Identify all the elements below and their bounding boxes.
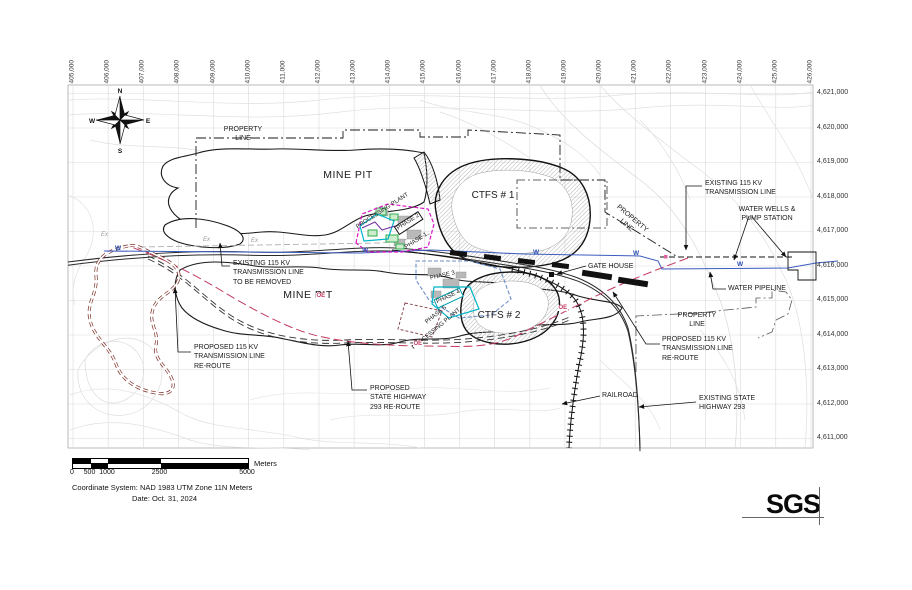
date-note: Date: Oct. 31, 2024 bbox=[132, 494, 197, 503]
scale-tick: 2500 bbox=[152, 469, 168, 476]
logo-horizontal-rule bbox=[742, 517, 824, 518]
water-line-marker: W bbox=[115, 245, 121, 252]
easting-tick-label: 414,000 bbox=[385, 40, 394, 84]
northing-tick-label: 4,621,000 bbox=[817, 89, 869, 96]
proposed-tl-right-label: PROPOSED 115 KV TRANSMISSION LINE RE-ROU… bbox=[662, 335, 733, 363]
overhead-electric-marker: OE bbox=[558, 305, 568, 311]
easting-tick-label: 411,000 bbox=[279, 40, 288, 84]
easting-tick-label: 409,000 bbox=[209, 40, 218, 84]
proposed-tl-left-label: PROPOSED 115 KV TRANSMISSION LINE RE-ROU… bbox=[194, 343, 265, 371]
easting-tick-label: 423,000 bbox=[701, 40, 710, 84]
easting-tick-label: 416,000 bbox=[455, 40, 464, 84]
scale-tick: 500 bbox=[84, 469, 96, 476]
easting-tick-label: 422,000 bbox=[666, 40, 675, 84]
existing-line-marker: Ex bbox=[251, 238, 258, 244]
water-line-marker: W bbox=[633, 250, 639, 257]
scale-tick: 5000 bbox=[239, 469, 255, 476]
water-line-marker: W bbox=[533, 249, 539, 256]
easting-tick-label: 420,000 bbox=[596, 40, 605, 84]
northing-tick-label: 4,614,000 bbox=[817, 331, 869, 338]
northing-tick-label: 4,619,000 bbox=[817, 158, 869, 165]
gate-house-label: GATE HOUSE bbox=[588, 262, 633, 271]
northing-tick-label: 4,612,000 bbox=[817, 400, 869, 407]
easting-tick-label: 405,000 bbox=[69, 40, 78, 84]
easting-tick-label: 426,000 bbox=[806, 40, 815, 84]
easting-tick-label: 421,000 bbox=[631, 40, 640, 84]
water-wells-label: WATER WELLS & PUMP STATION bbox=[736, 205, 798, 224]
scale-tick: 0 bbox=[70, 469, 74, 476]
easting-tick-label: 418,000 bbox=[525, 40, 534, 84]
mine-pit-north-label: MINE PIT bbox=[308, 169, 388, 182]
railroad-label: RAILROAD bbox=[602, 391, 638, 400]
northing-tick-label: 4,615,000 bbox=[817, 296, 869, 303]
scale-tick: 1000 bbox=[99, 469, 115, 476]
water-line-marker: W bbox=[362, 247, 368, 254]
existing-tl-remove-label: EXISTING 115 KV TRANSMISSION LINE TO BE … bbox=[233, 259, 304, 287]
logo-vertical-rule bbox=[819, 487, 820, 525]
ctfs2-label: CTFS # 2 bbox=[464, 310, 534, 323]
scale-bar: 0 500 1000 2500 5000 bbox=[72, 458, 249, 479]
proposed-tl-loop bbox=[89, 246, 179, 394]
easting-tick-label: 424,000 bbox=[736, 40, 745, 84]
ctfs1-label: CTFS # 1 bbox=[458, 190, 528, 203]
easting-tick-label: 415,000 bbox=[420, 40, 429, 84]
compass-south-label: S bbox=[118, 148, 123, 155]
mine-pit-south-label: MINE PIT bbox=[268, 289, 348, 302]
tl-junction-marker bbox=[664, 255, 668, 259]
proposed-highway-label: PROPOSED STATE HIGHWAY 293 RE-ROUTE bbox=[370, 384, 426, 412]
existing-highway-label: EXISTING STATE HIGHWAY 293 bbox=[699, 394, 755, 413]
property-line-south-label: PROPERTY LINE bbox=[672, 311, 722, 330]
sgs-logo: SGS bbox=[766, 489, 820, 520]
easting-tick-label: 407,000 bbox=[139, 40, 148, 84]
coordinate-system-note: Coordinate System: NAD 1983 UTM Zone 11N… bbox=[72, 483, 252, 492]
compass-north-label: N bbox=[118, 88, 123, 95]
water-line-marker: W bbox=[737, 261, 743, 268]
existing-line-marker: Ex bbox=[203, 237, 210, 243]
easting-tick-label: 417,000 bbox=[490, 40, 499, 84]
scale-bar-unit: Meters bbox=[254, 459, 277, 468]
easting-tick-label: 425,000 bbox=[771, 40, 780, 84]
easting-tick-label: 413,000 bbox=[350, 40, 359, 84]
overhead-electric-marker: OE bbox=[316, 293, 326, 299]
easting-tick-label: 408,000 bbox=[174, 40, 183, 84]
easting-tick-label: 412,000 bbox=[314, 40, 323, 84]
compass-west-label: W bbox=[89, 118, 96, 125]
northing-tick-label: 4,611,000 bbox=[817, 434, 869, 441]
easting-tick-label: 419,000 bbox=[560, 40, 569, 84]
northing-tick-label: 4,616,000 bbox=[817, 262, 869, 269]
easting-tick-label: 410,000 bbox=[244, 40, 253, 84]
property-line-north-label: PROPERTY LINE bbox=[218, 125, 268, 144]
water-pipeline-label: WATER PIPELINE bbox=[728, 284, 786, 293]
northing-tick-label: 4,613,000 bbox=[817, 365, 869, 372]
existing-line-marker: Ex bbox=[101, 232, 108, 238]
northing-tick-label: 4,618,000 bbox=[817, 193, 869, 200]
overhead-electric-marker: OE bbox=[413, 341, 423, 347]
gate-house-building bbox=[549, 272, 554, 277]
scale-bar-ticks: 0 500 1000 2500 5000 bbox=[72, 469, 249, 479]
site-map-sheet: N E S W PROPERTY LINE MINE PIT MINE PIT … bbox=[0, 0, 912, 590]
compass-star bbox=[96, 96, 144, 144]
northing-tick-label: 4,617,000 bbox=[817, 227, 869, 234]
easting-tick-label: 406,000 bbox=[104, 40, 113, 84]
existing-tl-east-label: EXISTING 115 KV TRANSMISSION LINE bbox=[705, 179, 776, 198]
northing-tick-label: 4,620,000 bbox=[817, 124, 869, 131]
compass-east-label: E bbox=[146, 118, 151, 125]
